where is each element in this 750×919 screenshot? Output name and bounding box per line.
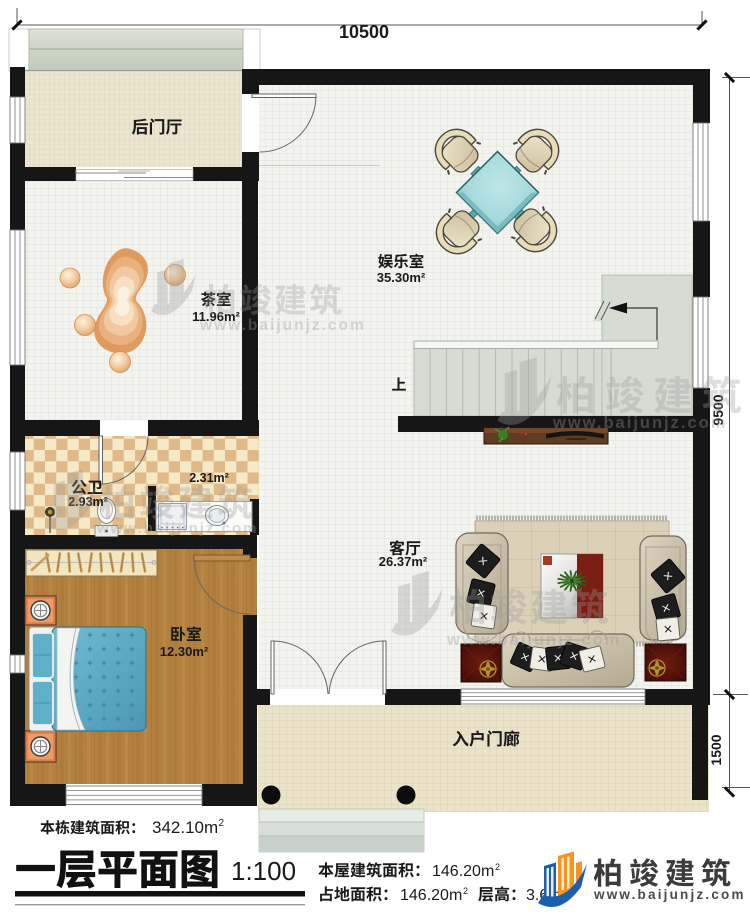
svg-text:www.baijunjz.com: www.baijunjz.com [593, 887, 746, 902]
svg-text:342.10m: 342.10m [152, 818, 218, 837]
svg-text:2: 2 [495, 862, 500, 872]
svg-text:10500: 10500 [339, 22, 389, 42]
svg-text:1:100: 1:100 [231, 856, 296, 886]
svg-text:146.20m: 146.20m [400, 887, 462, 904]
svg-text:12.30m²: 12.30m² [160, 644, 209, 659]
svg-text:www.baijunjz.com: www.baijunjz.com [199, 317, 366, 334]
svg-text:www.baijunjz.com: www.baijunjz.com [446, 631, 621, 649]
svg-text:146.20m: 146.20m [432, 863, 494, 880]
svg-text:2: 2 [219, 818, 225, 829]
svg-text:2.31m²: 2.31m² [189, 471, 229, 485]
svg-text:26.37m²: 26.37m² [379, 554, 428, 569]
svg-text:2: 2 [463, 886, 468, 896]
svg-text:www.baijunjz.com: www.baijunjz.com [552, 414, 727, 432]
svg-text:1500: 1500 [708, 734, 724, 765]
svg-text:35.30m²: 35.30m² [377, 270, 426, 285]
svg-text:www.baijunjz.com: www.baijunjz.com [96, 520, 258, 537]
